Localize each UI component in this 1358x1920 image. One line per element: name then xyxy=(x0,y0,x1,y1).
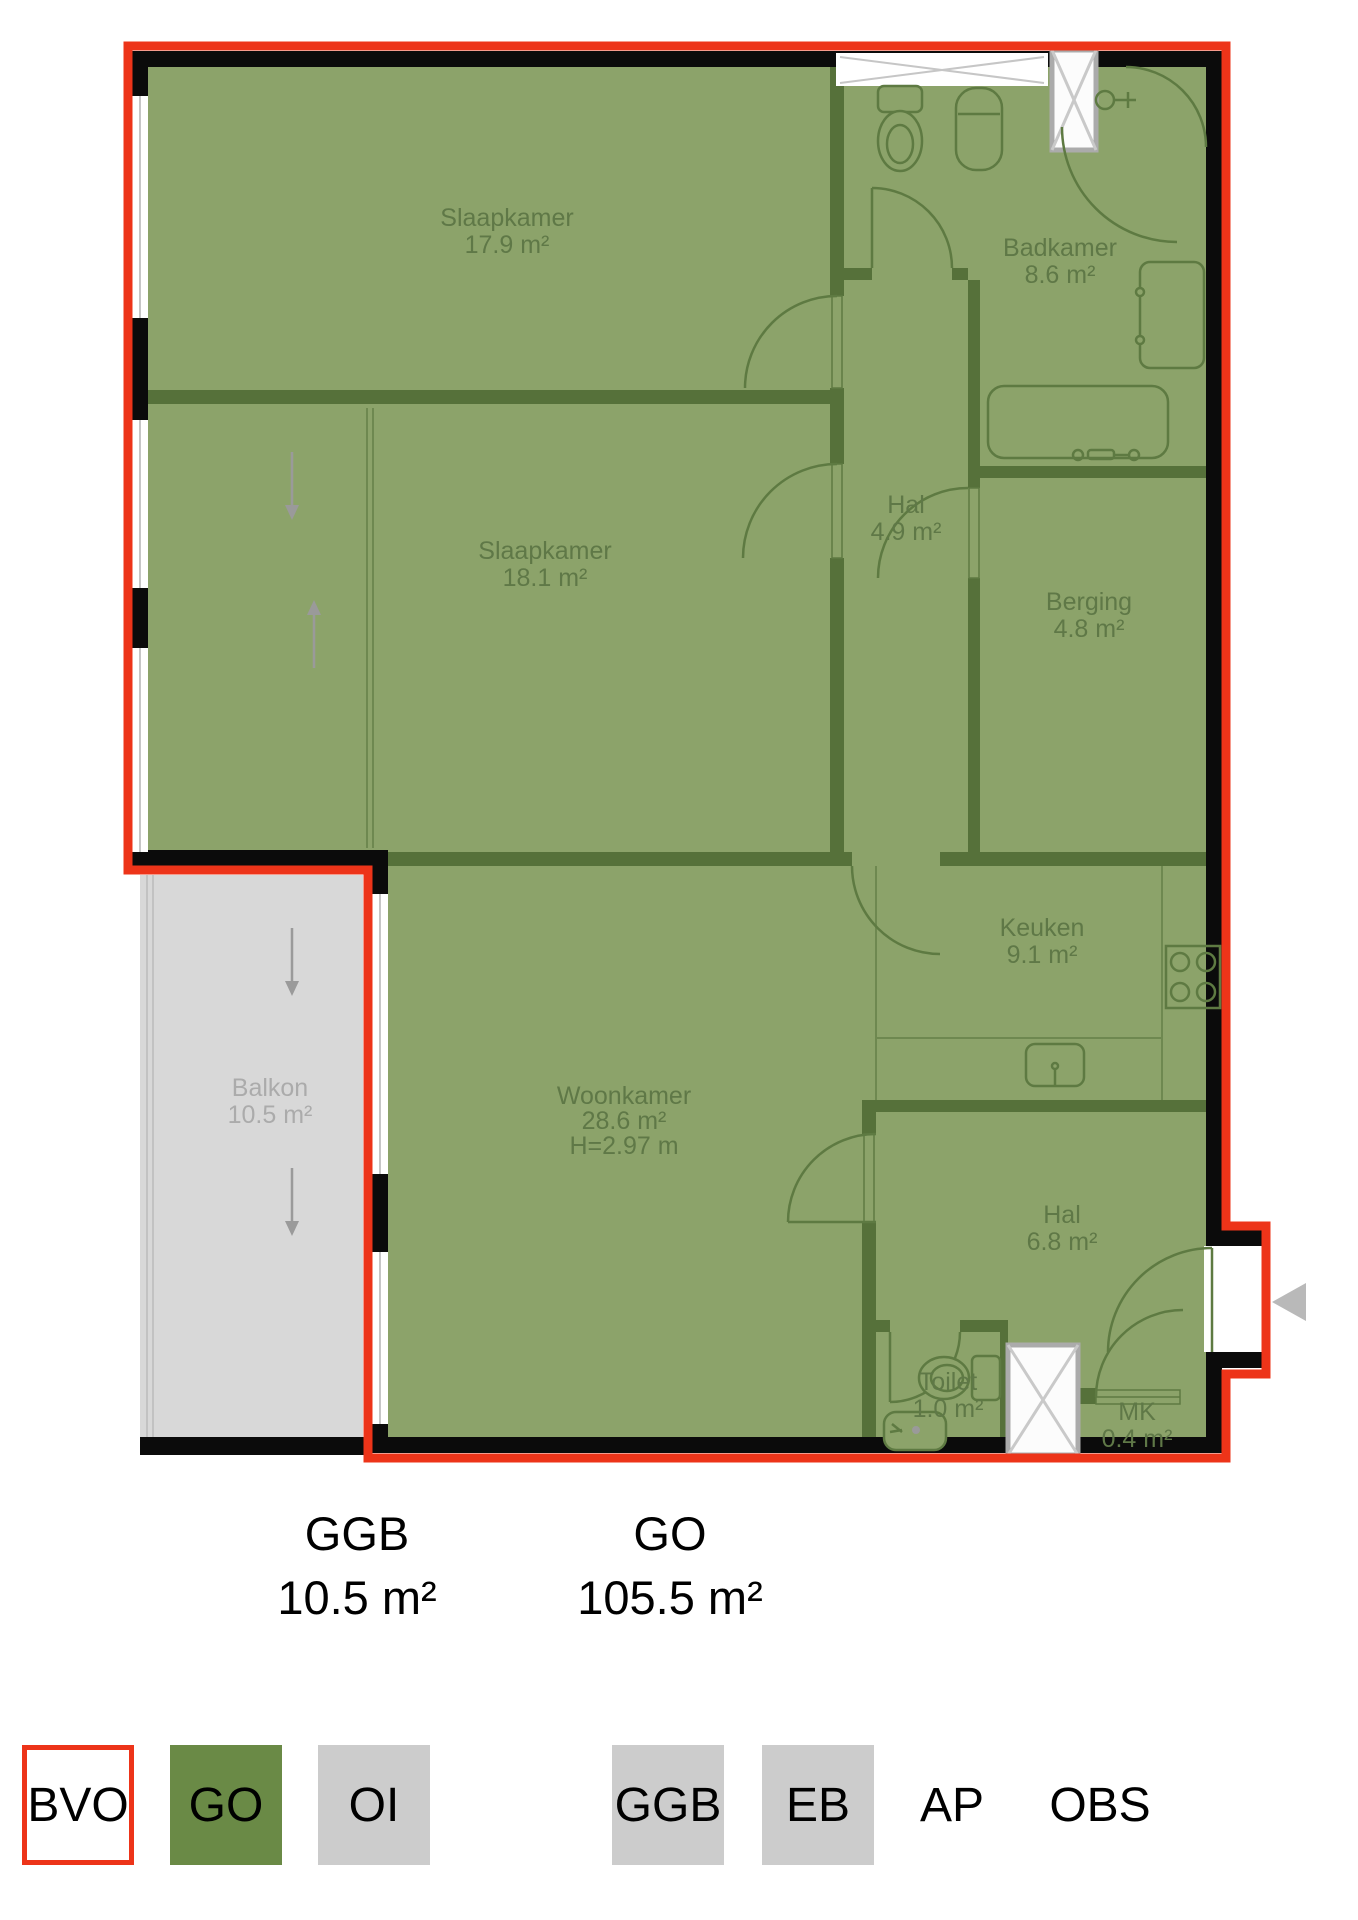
floorplan-page: Slaapkamer17.9 m² Badkamer8.6 m² Hal4.9 … xyxy=(0,0,1358,1920)
room-label-slaapkamer-2: Slaapkamer18.1 m² xyxy=(478,538,611,592)
summary-ggb: GGB10.5 m² xyxy=(277,1502,436,1630)
toilet-icon xyxy=(878,86,922,171)
legend-item-bvo: BVO xyxy=(22,1745,134,1865)
room-label-mk: MK0.4 m² xyxy=(1102,1399,1173,1453)
room-label-hal-2: Hal6.8 m² xyxy=(1027,1202,1098,1256)
duct-shaft-icon xyxy=(1052,50,1096,150)
room-label-berging: Berging4.8 m² xyxy=(1046,589,1132,643)
legend-item-ggb: GGB xyxy=(612,1745,724,1865)
room-label-toilet: Toilet1.0 m² xyxy=(913,1369,984,1423)
room-label-hal-1: Hal4.9 m² xyxy=(871,492,942,546)
legend-item-obs: OBS xyxy=(1049,1745,1150,1865)
elevator-shaft-icon xyxy=(1008,1345,1078,1455)
room-label-keuken: Keuken9.1 m² xyxy=(1000,915,1085,969)
legend-item-go: GO xyxy=(170,1745,282,1865)
legend-item-eb: EB xyxy=(762,1745,874,1865)
balcony-area xyxy=(140,875,363,1437)
entrance-arrow-icon xyxy=(1272,1283,1306,1321)
legend-item-oi: OI xyxy=(318,1745,430,1865)
radiator-icon xyxy=(1136,262,1204,368)
summary-go: GO105.5 m² xyxy=(577,1502,762,1630)
bidet-icon xyxy=(956,88,1002,170)
bathtub-icon xyxy=(988,386,1168,460)
floorplan-drawing xyxy=(0,0,1358,1920)
room-label-balkon: Balkon10.5 m² xyxy=(228,1075,313,1129)
room-label-woonkamer: Woonkamer28.6 m² H=2.97 m xyxy=(557,1084,691,1159)
room-label-badkamer: Badkamer8.6 m² xyxy=(1003,235,1117,289)
room-label-slaapkamer-1: Slaapkamer17.9 m² xyxy=(440,205,573,259)
legend-item-ap: AP xyxy=(920,1745,984,1865)
